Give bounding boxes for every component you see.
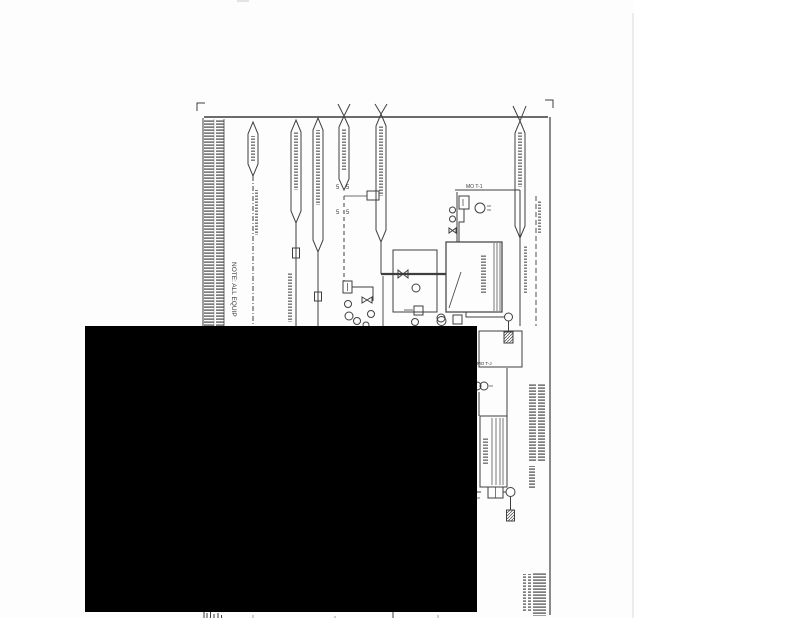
pipe-line-b-text [288, 272, 292, 322]
redaction-block [85, 326, 477, 612]
tank-pump-box [453, 315, 462, 324]
equipment-sub-box [414, 306, 423, 315]
tj-boundary-label: MO T-J [477, 361, 492, 366]
flow-arrow-b-label-text [294, 132, 298, 190]
fork-line-d2 [344, 104, 350, 116]
flow-arrow-a-label-text [251, 136, 255, 162]
valve-mark-5d: 5 [346, 210, 350, 216]
valve-mark-5b: 5 [346, 185, 350, 191]
t1-boundary-label: MO T-1 [466, 184, 483, 190]
vessel-name-text [483, 437, 488, 465]
equipment-bubble-2 [412, 319, 419, 326]
instrument-bubble-2 [345, 312, 353, 320]
margin-note-text-col3 [529, 466, 535, 488]
instrument-bubble-1 [345, 301, 352, 308]
fork-line-e2 [381, 104, 387, 114]
t1-inlet-pipe [459, 209, 464, 242]
margin-note-text-col2 [538, 384, 545, 462]
corner-mark-top-left [197, 103, 205, 111]
valve-symbol [362, 297, 372, 303]
outlet-bubble [505, 313, 513, 321]
fork-line-f2 [520, 106, 526, 121]
vessel-outlet-bubble [506, 488, 515, 497]
flow-arrow-f-label-text [518, 132, 522, 187]
pipe-line-a-text [255, 190, 258, 235]
t1-side-bubble-2 [450, 216, 456, 222]
t1-valve-symbol [449, 228, 456, 233]
storage-tank [446, 242, 502, 312]
diagram-canvas: NOTE: ALL EQUIP 5 5 5 5 [0, 0, 800, 618]
paper-margin [633, 0, 800, 618]
tank-level-line [449, 272, 461, 308]
utility-line-text [538, 200, 541, 234]
flow-arrow-c-label-text [316, 130, 320, 205]
fork-line-e1 [375, 104, 381, 114]
title-block-text-col2 [533, 572, 546, 616]
t1-instrument-bubble [475, 203, 485, 213]
t1-side-bubble-1 [450, 207, 456, 213]
t1-instrument-box [459, 196, 469, 209]
margin-note-text-col1 [529, 384, 536, 462]
instrument-bubble-3 [354, 318, 361, 325]
riser-line-text [524, 246, 527, 294]
flow-arrow-d-label-text [342, 128, 346, 170]
fork-line-f1 [513, 106, 520, 121]
instrument-bubble-4 [368, 311, 375, 318]
flow-arrow-e-label-text [379, 126, 383, 196]
branch-box-d [367, 191, 379, 200]
valve-mark-5a: 5 [336, 185, 340, 191]
corner-mark-top-right [545, 100, 553, 108]
equipment-bubble-1 [412, 284, 420, 292]
valve-mark-5c: 5 [336, 210, 340, 216]
note-all-equip-label: NOTE: ALL EQUIP [230, 262, 237, 317]
scan-artifact-tick [237, 0, 249, 2]
scanned-diagram-page: NOTE: ALL EQUIP 5 5 5 5 [0, 0, 800, 618]
equipment-box [393, 250, 437, 312]
tank-name-text [481, 255, 486, 293]
outlet-drain-box [504, 332, 513, 343]
vessel-drain-box [507, 510, 515, 521]
fork-line-d1 [338, 104, 344, 116]
tank-outlet-pipe [466, 312, 505, 317]
title-block-text-col1 [523, 574, 531, 612]
